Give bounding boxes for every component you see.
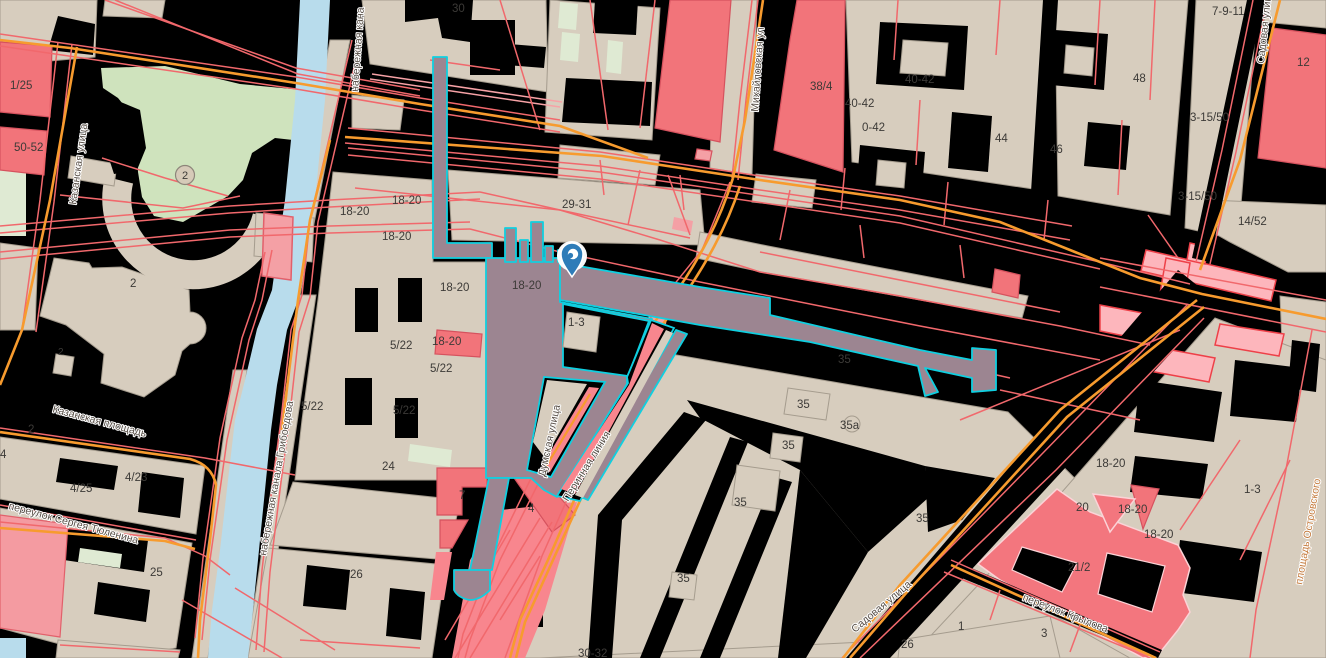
- svg-text:1/25: 1/25: [10, 80, 32, 92]
- svg-text:35: 35: [734, 497, 747, 509]
- svg-text:18-20: 18-20: [1096, 458, 1125, 470]
- svg-text:35: 35: [916, 513, 929, 525]
- svg-text:5/22: 5/22: [393, 405, 415, 417]
- svg-text:26: 26: [901, 639, 914, 651]
- svg-text:1: 1: [958, 621, 964, 633]
- svg-text:18-20: 18-20: [340, 206, 369, 218]
- svg-text:26: 26: [350, 569, 363, 581]
- svg-text:46: 46: [1050, 144, 1063, 156]
- svg-text:2: 2: [28, 424, 34, 436]
- svg-text:38/4: 38/4: [810, 81, 833, 93]
- svg-text:21/2: 21/2: [1068, 562, 1090, 574]
- svg-text:3-15/50: 3-15/50: [1178, 191, 1217, 203]
- svg-text:3-15/50: 3-15/50: [1190, 112, 1229, 124]
- svg-text:18-20: 18-20: [440, 282, 469, 294]
- svg-text:25: 25: [150, 567, 163, 579]
- svg-text:35: 35: [797, 399, 810, 411]
- svg-text:30-32: 30-32: [578, 648, 607, 658]
- svg-text:18-20: 18-20: [432, 336, 461, 348]
- svg-text:48: 48: [1133, 73, 1146, 85]
- svg-text:1-3: 1-3: [568, 317, 585, 329]
- svg-text:40-42: 40-42: [845, 98, 874, 110]
- svg-text:18-20: 18-20: [382, 231, 411, 243]
- svg-text:44: 44: [995, 133, 1008, 145]
- svg-text:18-20: 18-20: [1144, 529, 1173, 541]
- svg-text:24: 24: [382, 461, 395, 473]
- svg-text:35: 35: [677, 573, 690, 585]
- svg-text:35: 35: [838, 354, 851, 366]
- svg-text:29-31: 29-31: [562, 199, 591, 211]
- svg-text:2: 2: [182, 170, 188, 182]
- svg-text:35а: 35а: [840, 420, 860, 432]
- svg-text:5/22: 5/22: [390, 340, 412, 352]
- svg-text:18-20: 18-20: [392, 195, 421, 207]
- svg-text:0-42: 0-42: [862, 122, 885, 134]
- svg-text:5/22: 5/22: [430, 363, 452, 375]
- svg-text:18-20: 18-20: [512, 280, 541, 292]
- svg-text:2: 2: [130, 278, 136, 290]
- svg-text:50-52: 50-52: [14, 142, 43, 154]
- svg-text:1-3: 1-3: [1244, 484, 1261, 496]
- svg-text:4: 4: [528, 503, 535, 515]
- svg-text:4: 4: [0, 449, 7, 461]
- svg-text:40-42: 40-42: [905, 74, 934, 86]
- svg-text:14/52: 14/52: [1238, 216, 1267, 228]
- svg-text:4/25: 4/25: [70, 483, 92, 495]
- svg-text:7: 7: [459, 490, 465, 502]
- svg-text:5/22: 5/22: [301, 401, 323, 413]
- svg-text:18-20: 18-20: [1118, 504, 1147, 516]
- svg-text:2: 2: [58, 347, 64, 358]
- svg-text:30: 30: [452, 3, 465, 15]
- svg-text:7-9-11: 7-9-11: [1212, 6, 1244, 18]
- svg-text:4/23: 4/23: [125, 472, 147, 484]
- svg-text:12: 12: [1297, 57, 1310, 69]
- svg-text:3: 3: [1041, 628, 1047, 640]
- svg-text:35: 35: [782, 440, 795, 452]
- svg-text:20: 20: [1076, 502, 1089, 514]
